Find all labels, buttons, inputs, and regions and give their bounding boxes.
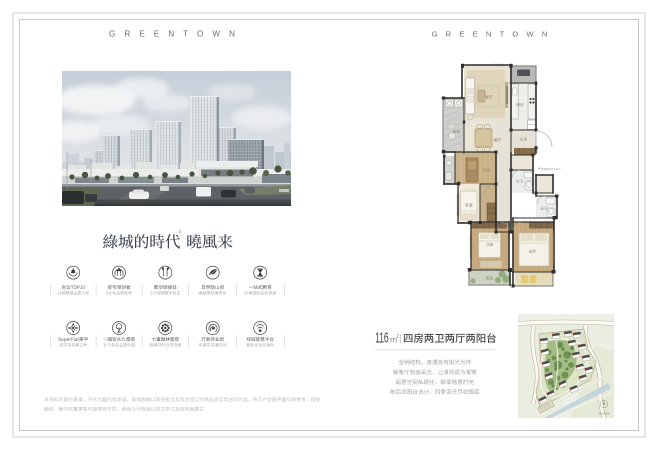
svg-text:GREENTOWN: GREENTOWN bbox=[109, 30, 244, 39]
svg-text:2: 2 bbox=[396, 334, 399, 340]
svg-text:GREENTOWN: GREENTOWN bbox=[432, 30, 556, 39]
svg-text:116: 116 bbox=[375, 331, 388, 347]
